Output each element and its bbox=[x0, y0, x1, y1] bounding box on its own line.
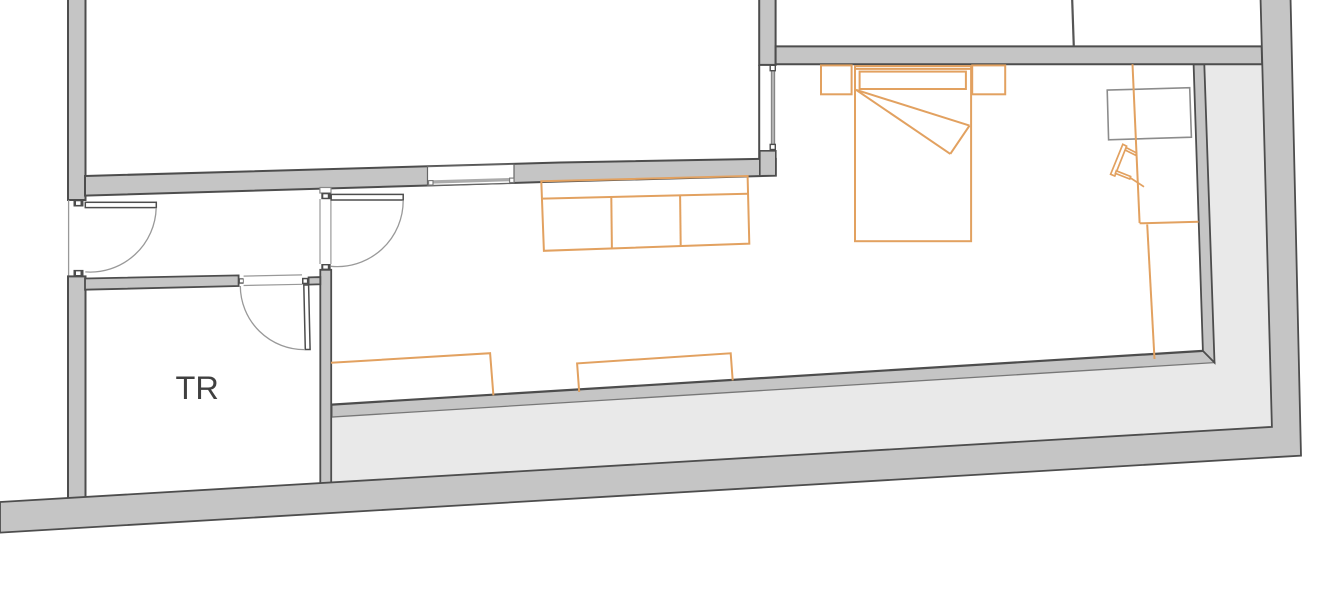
svg-text:TR: TR bbox=[176, 370, 219, 406]
